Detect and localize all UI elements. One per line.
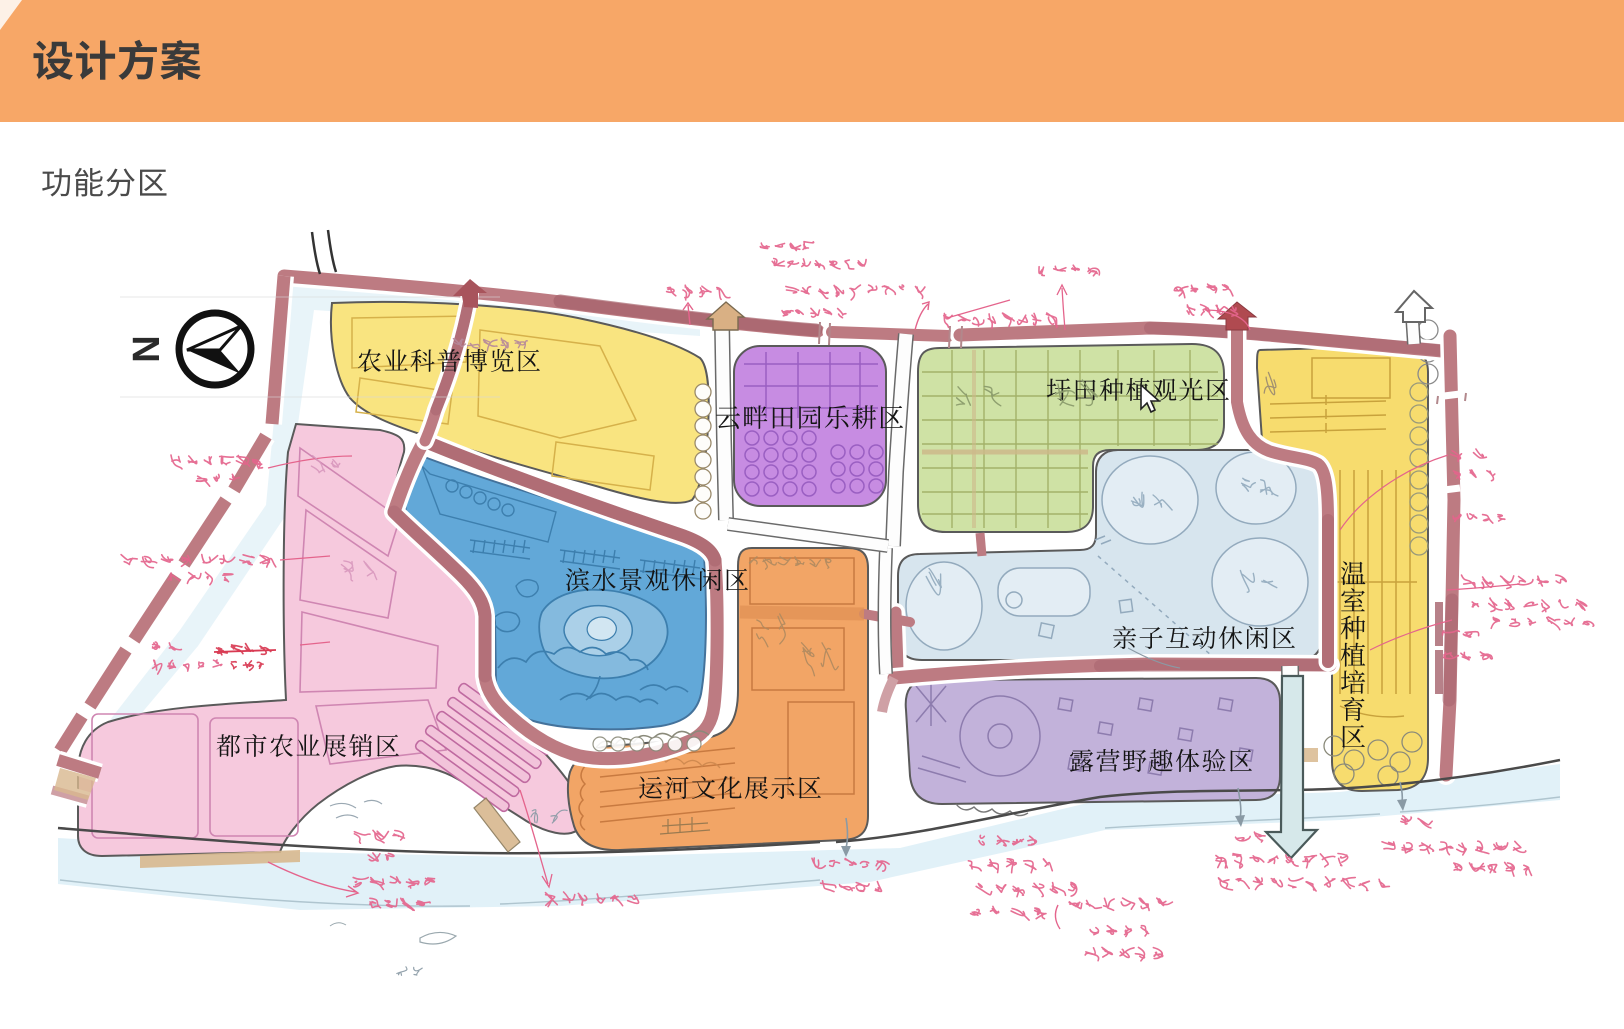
svg-text:N: N	[126, 335, 168, 362]
